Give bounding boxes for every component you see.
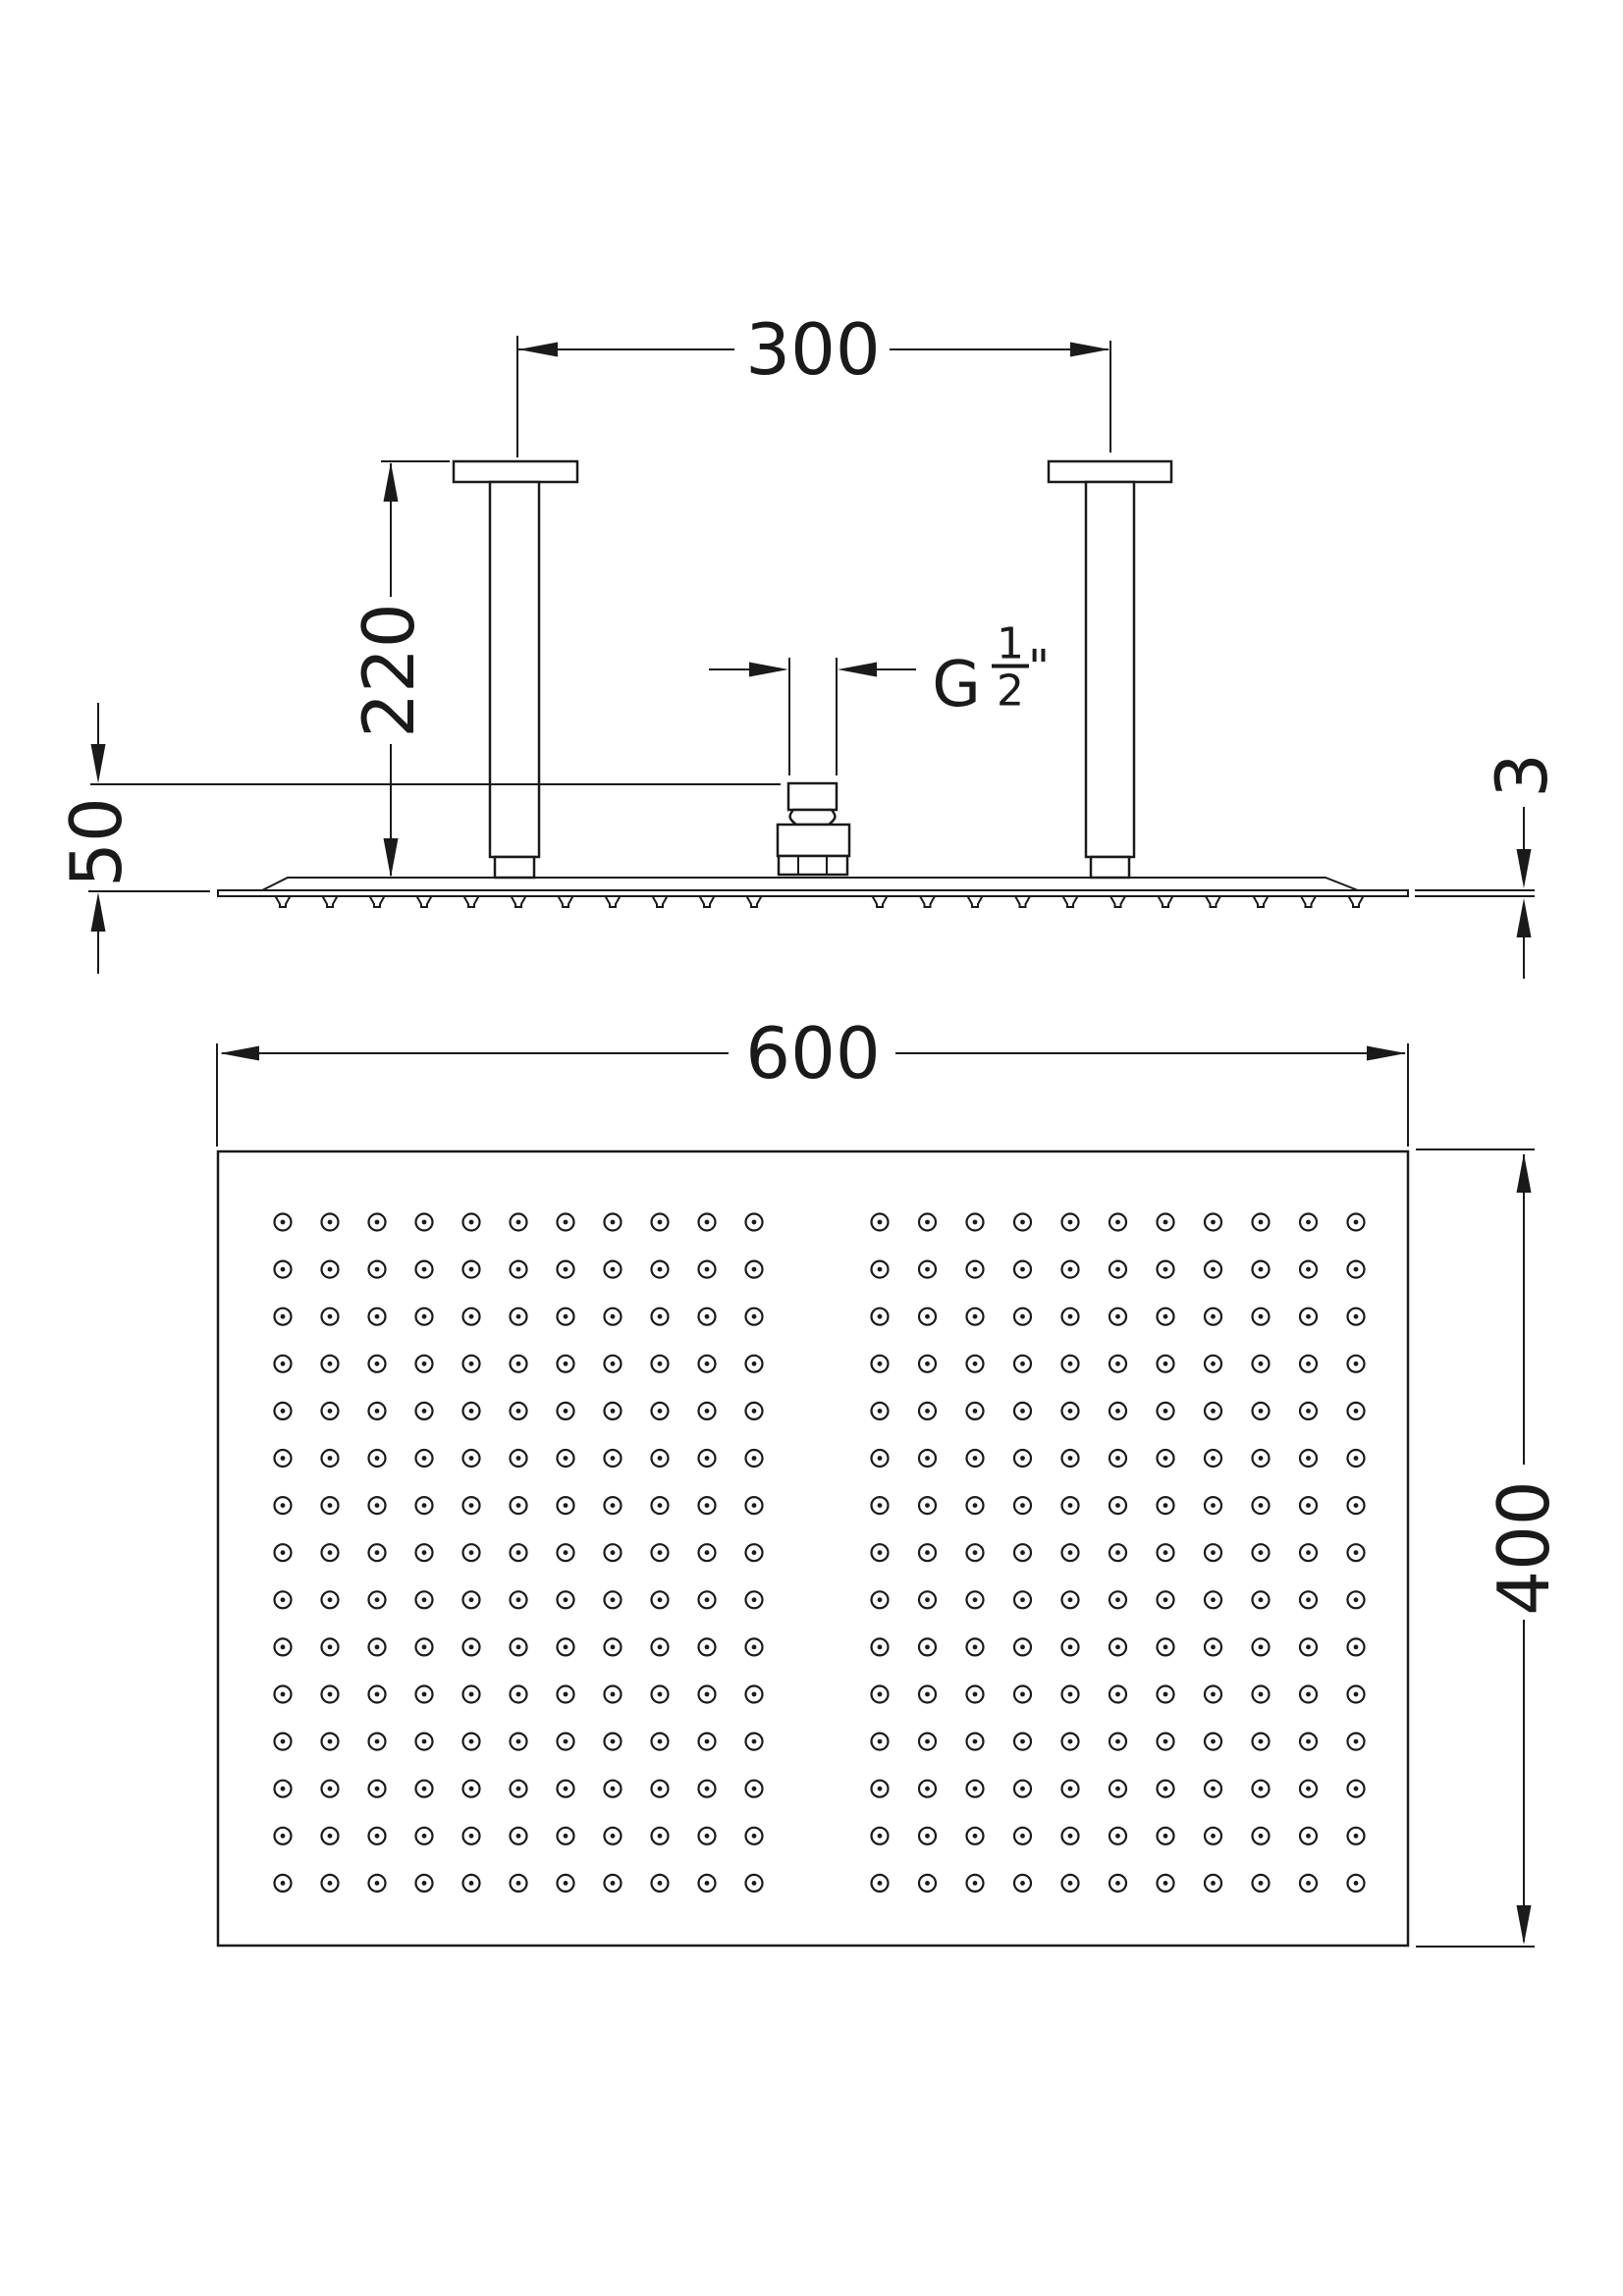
nozzle-dot — [422, 1267, 427, 1272]
nozzle-dot — [1068, 1787, 1073, 1791]
arrowhead-left — [220, 1046, 259, 1061]
nozzle-dot — [469, 1503, 474, 1508]
nozzle-dot — [375, 1645, 380, 1650]
nozzle-dot — [281, 1220, 286, 1225]
nozzle-dot — [1306, 1267, 1311, 1272]
side-nozzle — [1015, 896, 1030, 907]
nozzle-dot — [1211, 1267, 1216, 1272]
nozzle-dot — [611, 1739, 616, 1744]
nozzle-dot — [375, 1409, 380, 1414]
dim-label-arm-length: 220 — [348, 603, 430, 737]
nozzle-dot — [1163, 1456, 1168, 1461]
nozzle-dot — [516, 1739, 521, 1744]
nozzle-dot — [375, 1220, 380, 1225]
technical-drawing: 300 220 50 G 1 2 " — [0, 0, 1623, 2296]
dim-plate-thickness: 3 — [1415, 753, 1563, 979]
nozzle-dot — [1211, 1550, 1216, 1555]
nozzle-dot — [564, 1409, 568, 1414]
nozzle-dot — [564, 1739, 568, 1744]
nozzle-dot — [516, 1456, 521, 1461]
nozzle-dot — [1115, 1787, 1120, 1791]
dim-arm-pitch: 300 — [517, 308, 1110, 457]
nozzle-dot — [611, 1220, 616, 1225]
nozzle-dot — [752, 1834, 757, 1839]
nozzle-dot — [925, 1692, 930, 1697]
nozzle-dot — [281, 1787, 286, 1791]
nozzle-dot — [1306, 1834, 1311, 1839]
nozzle-dot — [925, 1597, 930, 1602]
nozzle-dot — [1068, 1409, 1073, 1414]
dim-label-arm-pitch: 300 — [745, 308, 880, 391]
nozzle-dot — [375, 1503, 380, 1508]
nozzle-dot — [516, 1881, 521, 1886]
nozzle-dot — [973, 1597, 978, 1602]
nozzle-dot — [705, 1645, 710, 1650]
panel-plate — [218, 890, 1408, 896]
nozzle-dot — [1068, 1314, 1073, 1319]
nozzle-dot — [281, 1362, 286, 1366]
nozzle-dot — [1259, 1267, 1264, 1272]
nozzle-dot — [1068, 1597, 1073, 1602]
nozzle-dot — [375, 1787, 380, 1791]
nozzle-dot — [925, 1787, 930, 1791]
nozzle-dot — [705, 1550, 710, 1555]
thread-label-denominator: 2 — [997, 667, 1024, 717]
nozzle-dot — [1163, 1267, 1168, 1272]
nozzle-dot — [1115, 1503, 1120, 1508]
nozzle-dot — [1354, 1314, 1359, 1319]
nozzle-dot — [925, 1550, 930, 1555]
nozzle-dot — [516, 1409, 521, 1414]
nozzle-dot — [1115, 1314, 1120, 1319]
nozzle-dot — [469, 1645, 474, 1650]
nozzle-dot — [1020, 1692, 1025, 1697]
nozzle-dot — [469, 1409, 474, 1414]
nozzle-dot — [1306, 1597, 1311, 1602]
arrowhead-down — [384, 838, 399, 878]
nozzle-dot — [281, 1314, 286, 1319]
nozzle-dot — [516, 1550, 521, 1555]
nozzle-dot — [1306, 1739, 1311, 1744]
nozzle-dot — [973, 1503, 978, 1508]
side-nozzle — [512, 896, 526, 907]
nozzle-dot — [1259, 1314, 1264, 1319]
nozzle-dot — [973, 1409, 978, 1414]
nozzle-dot — [1163, 1645, 1168, 1650]
nozzle-dot — [564, 1503, 568, 1508]
nozzle-dot — [1354, 1645, 1359, 1650]
nozzle-dot — [281, 1409, 286, 1414]
side-nozzle — [559, 896, 573, 907]
nozzle-dot — [1259, 1881, 1264, 1886]
nozzle-dot — [1211, 1787, 1216, 1791]
nozzle-dot — [564, 1834, 568, 1839]
nozzle-dot — [752, 1267, 757, 1272]
nozzle-dot — [469, 1597, 474, 1602]
arrowhead-up — [384, 462, 399, 502]
nozzle-dot — [469, 1692, 474, 1697]
nozzle-dot — [1211, 1597, 1216, 1602]
side-nozzle — [873, 896, 888, 907]
nozzle-dot — [281, 1645, 286, 1650]
nozzle-dot — [1259, 1409, 1264, 1414]
nozzle-dot — [516, 1787, 521, 1791]
nozzle-dot — [658, 1314, 663, 1319]
nozzle-dot — [281, 1456, 286, 1461]
nozzle-dot — [1211, 1834, 1216, 1839]
nozzle-dot — [705, 1220, 710, 1225]
nozzle-dot — [422, 1362, 427, 1366]
nozzle-dot — [752, 1645, 757, 1650]
nozzle-dot — [328, 1314, 333, 1319]
nozzle-dot — [1020, 1834, 1025, 1839]
nozzle-dot — [1259, 1692, 1264, 1697]
nozzle-dot — [705, 1362, 710, 1366]
nozzle-dot — [1211, 1362, 1216, 1366]
nozzle-dot — [375, 1834, 380, 1839]
nozzle-dot — [658, 1597, 663, 1602]
nozzle-dot — [422, 1550, 427, 1555]
nozzle-dot — [422, 1645, 427, 1650]
nozzle-dot — [469, 1314, 474, 1319]
nozzle-dot — [1211, 1692, 1216, 1697]
nozzle-dot — [564, 1267, 568, 1272]
side-nozzle — [920, 896, 935, 907]
nozzle-dot — [1068, 1645, 1073, 1650]
nozzle-dot — [1306, 1362, 1311, 1366]
nozzle-dot — [281, 1692, 286, 1697]
nozzle-dot — [564, 1645, 568, 1650]
nozzle-dot — [1354, 1787, 1359, 1791]
nozzle-dot — [328, 1645, 333, 1650]
side-nozzle — [1349, 896, 1364, 907]
arrowhead-left — [518, 343, 558, 357]
nozzle-dot — [1211, 1314, 1216, 1319]
side-nozzle — [968, 896, 983, 907]
nozzle-dot — [973, 1692, 978, 1697]
nozzle-dot — [516, 1503, 521, 1508]
nozzle-dot — [564, 1881, 568, 1886]
nozzle-dot — [1354, 1834, 1359, 1839]
nozzle-dot — [1163, 1503, 1168, 1508]
nozzle-dot — [658, 1409, 663, 1414]
nozzle-dot — [328, 1362, 333, 1366]
nozzle-dot — [516, 1220, 521, 1225]
panel-top-profile — [262, 878, 1358, 890]
nozzle-dot — [1163, 1597, 1168, 1602]
nozzle-dot — [422, 1881, 427, 1886]
nozzle-dot — [1259, 1597, 1264, 1602]
dim-label-plan-width: 600 — [745, 1012, 880, 1095]
nozzle-dot — [611, 1362, 616, 1366]
side-nozzle — [370, 896, 385, 907]
nozzle-dot — [878, 1503, 883, 1508]
nozzle-dot — [1354, 1739, 1359, 1744]
nozzle-dot — [658, 1267, 663, 1272]
nozzle-dot — [1306, 1881, 1311, 1886]
nozzle-dot — [1163, 1739, 1168, 1744]
side-nozzle — [323, 896, 338, 907]
nozzle-dot — [422, 1739, 427, 1744]
nozzle-dot — [1020, 1881, 1025, 1886]
dim-label-plate-thickness: 3 — [1481, 753, 1563, 798]
nozzle-dot — [469, 1787, 474, 1791]
nozzle-dot — [611, 1597, 616, 1602]
nozzle-dot — [1115, 1362, 1120, 1366]
nozzle-dot — [328, 1409, 333, 1414]
nozzle-dot — [1354, 1362, 1359, 1366]
arrowhead-right — [1367, 1046, 1406, 1061]
nozzle-dot — [752, 1881, 757, 1886]
nozzle-dot — [658, 1362, 663, 1366]
nozzle-dot — [973, 1739, 978, 1744]
nozzle-dot — [328, 1597, 333, 1602]
nozzle-dot — [878, 1881, 883, 1886]
nozzle-dot — [422, 1220, 427, 1225]
nozzle-dot — [1068, 1692, 1073, 1697]
dim-plan-width: 600 — [217, 1012, 1408, 1147]
nozzle-dot — [878, 1362, 883, 1366]
nozzle-dot — [1020, 1456, 1025, 1461]
side-nozzle — [700, 896, 715, 907]
nozzle-dot — [925, 1362, 930, 1366]
nozzle-dot — [1020, 1503, 1025, 1508]
nozzle-dot — [1020, 1787, 1025, 1791]
nozzle-dot — [658, 1503, 663, 1508]
nozzle-dot — [925, 1220, 930, 1225]
nozzle-dot — [878, 1220, 883, 1225]
nozzle-dot — [611, 1550, 616, 1555]
right-drop-pipe — [1086, 482, 1134, 857]
nozzle-dot — [1163, 1834, 1168, 1839]
nozzle-dot — [658, 1787, 663, 1791]
nozzle-dot — [925, 1739, 930, 1744]
drawing-page: 300 220 50 G 1 2 " — [0, 0, 1623, 2296]
nozzle-dot — [878, 1267, 883, 1272]
nozzle-dot — [1115, 1409, 1120, 1414]
nozzle-dot — [1163, 1220, 1168, 1225]
nozzle-dot — [973, 1267, 978, 1272]
nozzle-dot — [1068, 1881, 1073, 1886]
arrowhead-down — [1517, 849, 1532, 888]
nozzle-dot — [1211, 1409, 1216, 1414]
nozzle-dot — [516, 1314, 521, 1319]
dim-thread: G 1 2 " — [709, 619, 1050, 776]
nozzle-dot — [925, 1881, 930, 1886]
side-nozzle-row — [276, 896, 1364, 907]
nozzle-dot — [1020, 1267, 1025, 1272]
nozzle-dot — [328, 1550, 333, 1555]
dim-label-recess-depth: 50 — [55, 797, 137, 887]
nozzle-dot — [1306, 1550, 1311, 1555]
nozzle-dot — [752, 1503, 757, 1508]
nozzle-dot — [658, 1881, 663, 1886]
nozzle-dot — [1163, 1550, 1168, 1555]
nozzle-dot — [469, 1881, 474, 1886]
nozzle-dot — [1163, 1314, 1168, 1319]
nozzle-dot — [1020, 1409, 1025, 1414]
nozzle-dot — [1354, 1550, 1359, 1555]
nozzle-dot — [328, 1692, 333, 1697]
nozzle-dot — [1068, 1739, 1073, 1744]
thread-label-numerator: 1 — [997, 619, 1024, 669]
nozzle-dot — [1020, 1220, 1025, 1225]
nozzle-dot — [1020, 1597, 1025, 1602]
nozzle-dot — [1163, 1787, 1168, 1791]
nozzle-dot — [375, 1739, 380, 1744]
nozzle-dot — [1115, 1834, 1120, 1839]
nozzle-dot — [328, 1881, 333, 1886]
nozzle-dot — [1354, 1597, 1359, 1602]
nozzle-dot — [1211, 1645, 1216, 1650]
nozzle-dot — [878, 1550, 883, 1555]
plan-outline — [218, 1151, 1408, 1946]
nozzle-dot — [1259, 1456, 1264, 1461]
nozzle-dot — [375, 1362, 380, 1366]
nozzle-dot — [1068, 1267, 1073, 1272]
nozzle-dot — [1163, 1692, 1168, 1697]
arrowhead-right — [1070, 343, 1109, 357]
nozzle-dot — [1068, 1503, 1073, 1508]
nozzle-dot — [925, 1267, 930, 1272]
inlet-base — [779, 856, 847, 875]
nozzle-dot — [1306, 1692, 1311, 1697]
nozzle-dot — [973, 1220, 978, 1225]
nozzle-dot — [658, 1220, 663, 1225]
nozzle-dot — [1211, 1220, 1216, 1225]
dim-arm-length: 220 — [348, 461, 450, 878]
nozzle-dot — [1020, 1314, 1025, 1319]
nozzle-dot — [611, 1881, 616, 1886]
nozzle-dot — [1068, 1362, 1073, 1366]
nozzle-dot — [281, 1503, 286, 1508]
nozzle-dot — [281, 1597, 286, 1602]
nozzle-dot — [925, 1834, 930, 1839]
side-nozzle — [417, 896, 432, 907]
arrowhead-down — [91, 744, 106, 783]
arrowhead-left — [838, 663, 877, 677]
nozzle-dot — [375, 1314, 380, 1319]
nozzle-dot — [1306, 1645, 1311, 1650]
nozzle-dot — [422, 1456, 427, 1461]
nozzle-dot — [422, 1834, 427, 1839]
nozzle-dot — [658, 1834, 663, 1839]
nozzle-dot — [705, 1456, 710, 1461]
nozzle-dot — [1306, 1503, 1311, 1508]
nozzle-dot — [1306, 1409, 1311, 1414]
nozzle-dot — [1354, 1456, 1359, 1461]
side-view — [90, 461, 1408, 907]
nozzle-dot — [1259, 1834, 1264, 1839]
nozzle-dot — [925, 1409, 930, 1414]
nozzle-dot — [1115, 1692, 1120, 1697]
nozzle-dot — [328, 1787, 333, 1791]
left-ceiling-flange — [454, 461, 577, 482]
nozzle-dot — [1211, 1739, 1216, 1744]
nozzle-dot — [564, 1597, 568, 1602]
nozzle-dot — [1020, 1550, 1025, 1555]
side-nozzle — [1301, 896, 1316, 907]
nozzle-dot — [658, 1739, 663, 1744]
nozzle-dot — [422, 1409, 427, 1414]
nozzle-dot — [1020, 1739, 1025, 1744]
nozzle-dot — [611, 1787, 616, 1791]
nozzle-dot — [564, 1362, 568, 1366]
nozzle-dot — [469, 1456, 474, 1461]
nozzle-dot — [564, 1550, 568, 1555]
nozzle-dot — [878, 1456, 883, 1461]
nozzle-dot — [1354, 1692, 1359, 1697]
nozzle-dot — [752, 1362, 757, 1366]
nozzle-dot — [1354, 1881, 1359, 1886]
nozzle-dot — [1115, 1739, 1120, 1744]
nozzle-dot — [516, 1834, 521, 1839]
nozzle-dot — [752, 1787, 757, 1791]
right-mount — [1049, 461, 1171, 878]
nozzle-dot — [1259, 1739, 1264, 1744]
nozzle-dot — [328, 1220, 333, 1225]
nozzle-dot — [1259, 1362, 1264, 1366]
nozzle-dot — [705, 1409, 710, 1414]
nozzle-dot — [1115, 1550, 1120, 1555]
nozzle-dot — [564, 1456, 568, 1461]
side-nozzle — [606, 896, 621, 907]
nozzle-dot — [328, 1267, 333, 1272]
nozzle-dot — [705, 1503, 710, 1508]
nozzle-dot — [375, 1550, 380, 1555]
nozzle-dot — [752, 1739, 757, 1744]
nozzle-dot — [1259, 1503, 1264, 1508]
nozzle-dot — [1163, 1409, 1168, 1414]
nozzle-dot — [422, 1787, 427, 1791]
nozzle-dot — [705, 1314, 710, 1319]
nozzle-dot — [658, 1692, 663, 1697]
nozzle-dot — [925, 1314, 930, 1319]
nozzle-dot — [1115, 1267, 1120, 1272]
nozzle-dot — [878, 1692, 883, 1697]
nozzle-dot — [1354, 1409, 1359, 1414]
nozzle-dot — [328, 1503, 333, 1508]
nozzle-dot — [1068, 1456, 1073, 1461]
side-nozzle — [1254, 896, 1269, 907]
nozzle-dot — [752, 1597, 757, 1602]
nozzle-dot — [375, 1456, 380, 1461]
nozzle-dot — [925, 1503, 930, 1508]
nozzle-dot — [658, 1456, 663, 1461]
nozzle-dot — [611, 1503, 616, 1508]
inlet-connector — [778, 783, 849, 875]
nozzle-dot — [564, 1220, 568, 1225]
side-nozzle — [1206, 896, 1220, 907]
left-drop-pipe — [490, 482, 539, 857]
nozzle-dot — [611, 1267, 616, 1272]
nozzle-dot — [1211, 1456, 1216, 1461]
nozzle-dot — [1306, 1314, 1311, 1319]
nozzle-dot — [658, 1645, 663, 1650]
nozzle-dot — [516, 1267, 521, 1272]
nozzle-dot — [752, 1550, 757, 1555]
nozzle-dot — [469, 1550, 474, 1555]
nozzle-dot — [705, 1787, 710, 1791]
nozzle-dot — [973, 1834, 978, 1839]
nozzle-dot — [1354, 1503, 1359, 1508]
nozzle-dot — [422, 1597, 427, 1602]
nozzle-dot — [281, 1881, 286, 1886]
nozzle-dot — [973, 1550, 978, 1555]
nozzle-dot — [752, 1220, 757, 1225]
nozzle-dot — [705, 1267, 710, 1272]
nozzle-dot — [1068, 1550, 1073, 1555]
